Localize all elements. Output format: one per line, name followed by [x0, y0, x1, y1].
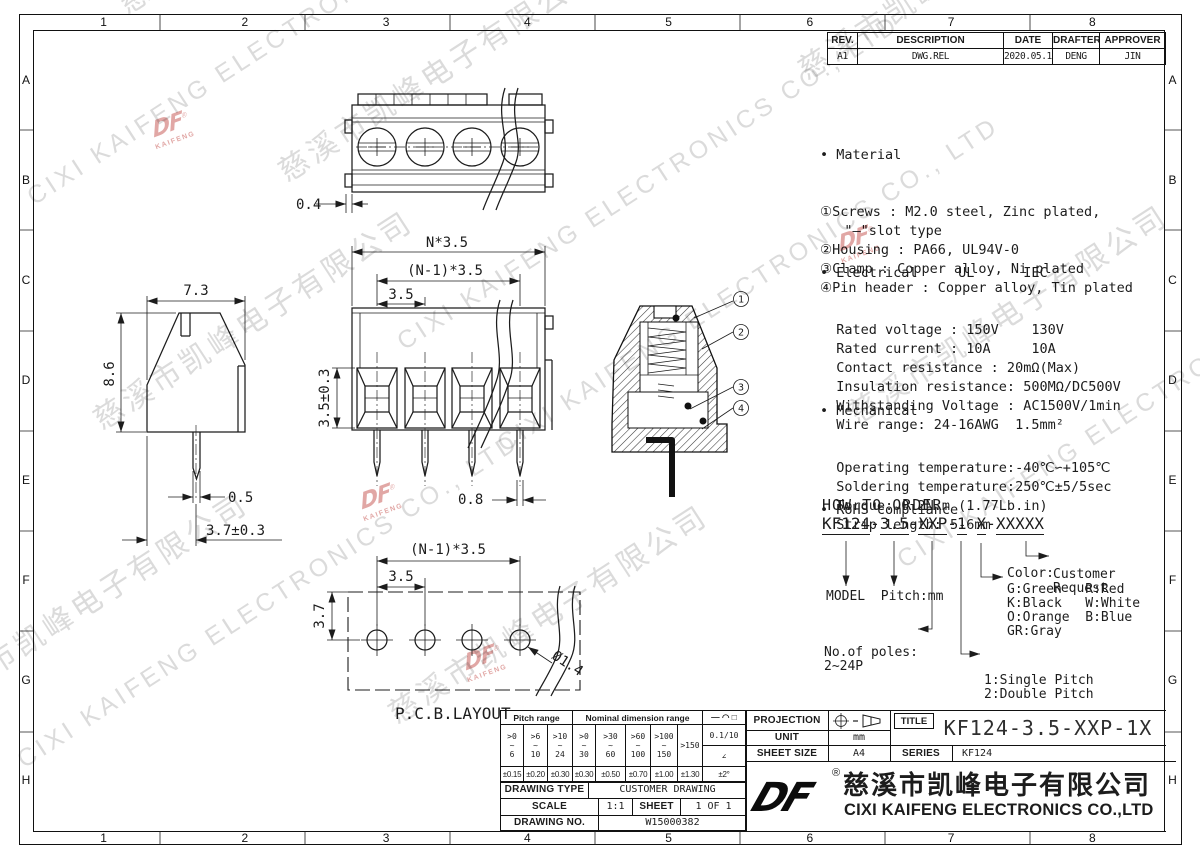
company-name-zh: 慈溪市凯峰电子有限公司	[843, 765, 1165, 802]
front-view-dims: N*3.5 (N-1)*3.5 3.5	[352, 235, 545, 306]
order-code-segment: X	[977, 514, 987, 535]
dim-pcb-row	[327, 592, 360, 640]
dim-label: 3.5	[388, 287, 413, 303]
series-label: SERIES	[890, 745, 953, 762]
nominal-cell: >100 ~ 150	[651, 725, 678, 767]
registered-mark: ®	[832, 767, 840, 779]
kaifeng-logo: DF	[746, 775, 817, 821]
tolerance-cell: ±0.30	[548, 767, 573, 782]
revision-header-cell: DESCRIPTION	[858, 33, 1004, 49]
unit-label: UNIT	[746, 730, 829, 746]
pcb-layout-view: (N-1)*3.5 3.5 3.7 Ø1.4 P.C.B.LAYOUT	[312, 542, 586, 723]
order-poles-label: No.of poles:2~24P	[824, 618, 918, 688]
pitch-cell: >10 ~ 24	[548, 725, 573, 767]
dim-label: (N-1)*3.5	[410, 542, 486, 558]
over-cell: >150	[678, 725, 703, 767]
revision-data-cell: 2020.05.19	[1004, 49, 1053, 65]
order-code-hyphen: -	[909, 514, 919, 533]
order-code-hyphen: -	[947, 514, 957, 533]
side-view: 7.3 8.6 0.5 3.7±0.3	[102, 283, 282, 546]
revision-data-row: A1DWG.REL2020.05.19DENGJIN	[828, 49, 1166, 65]
order-code-segment: XXXXX	[996, 514, 1044, 535]
series-value: KF124	[952, 745, 1176, 762]
note-line: Rated current : 10A 10A	[820, 340, 1121, 359]
order-model-pitch-label: MODEL Pitch:mm	[826, 590, 943, 604]
dim-label: 0.8	[458, 492, 483, 508]
dim-side-height	[116, 313, 176, 432]
dim-pin-side	[168, 471, 225, 503]
order-pitch-type-label: 1:Single Pitch2:Double Pitch	[984, 646, 1094, 716]
symbol-header: — ◠ □	[703, 711, 746, 725]
dim-label: 7.3	[183, 283, 208, 299]
how-to-order-title: HOW TO ORDER	[822, 496, 942, 514]
tolerance-cell: ±1.00	[651, 767, 678, 782]
dim-pcb-pitch	[377, 578, 425, 626]
revision-header-row: REV.DESCRIPTIONDATEDRAFTERAPPROVER	[828, 33, 1166, 49]
tolerance-cell: ±0.30	[573, 767, 596, 782]
dim-label: 3.7	[312, 603, 328, 628]
pitch-cell: >0 ~ 6	[501, 725, 524, 767]
order-code-hyphen: -	[986, 514, 996, 533]
fraction-angle-cell: 0.1/10∠	[703, 725, 746, 767]
color-option-line: GR:Gray	[1007, 625, 1140, 639]
pitch-cell: >6 ~ 10	[524, 725, 548, 767]
dim-side-width	[147, 296, 245, 380]
sheet-size-value: A4	[828, 745, 891, 762]
revision-header-cell: DATE	[1004, 33, 1053, 49]
front-view: 0.8 3.5±0.3	[317, 300, 553, 508]
revision-data-cell: DWG.REL	[858, 49, 1004, 65]
order-customer-label: CustomerRequest	[1053, 540, 1116, 610]
unit-value: mm	[828, 730, 891, 746]
first-angle-projection-icon	[830, 712, 888, 730]
nominal-cell: >0 ~ 30	[573, 725, 596, 767]
order-code-segment: 1	[957, 514, 967, 535]
tolerance-cell: ±0.20	[524, 767, 548, 782]
note-title: • Electrical UL IEC	[820, 264, 1121, 283]
tolerance-cell: ±0.70	[626, 767, 651, 782]
tolerance-table: Pitch range Nominal dimension range — ◠ …	[500, 710, 747, 783]
revision-table: REV.DESCRIPTIONDATEDRAFTERAPPROVER A1DWG…	[827, 32, 1166, 65]
nominal-cell: >60 ~ 100	[626, 725, 651, 767]
angle-tolerance-cell: ±2°	[703, 767, 746, 782]
section-view: 1 2 3 4	[612, 292, 749, 498]
revision-data-cell: JIN	[1100, 49, 1166, 65]
order-code-segment: XXP	[918, 514, 947, 535]
top-view: 0.4	[296, 88, 553, 213]
note-title: • Mechanical	[820, 402, 1112, 421]
order-color-title: Color:	[1007, 567, 1054, 581]
dim-label: 0.4	[296, 197, 321, 213]
title-block: PROJECTION UNIT mm SHEET SIZE A4 TITLE K…	[745, 710, 1166, 832]
dim-pcb-inner-pitch	[377, 556, 520, 626]
title-label: TITLE	[894, 713, 934, 729]
dim-label: 0.5	[228, 490, 253, 506]
callout-label: 3	[738, 383, 744, 394]
order-code: KF124-3.5-XXP-1X-XXXXX	[822, 514, 1044, 535]
company-area: DF ® 慈溪市凯峰电子有限公司 CIXI KAIFENG ELECTRONIC…	[746, 761, 1166, 831]
note-line: ①Screws : M2.0 steel, Zinc plated,	[820, 203, 1133, 222]
dim-tab-offset	[316, 194, 368, 213]
sheet-size-label: SHEET SIZE	[746, 745, 829, 762]
pcb-layout-label: P.C.B.LAYOUT	[395, 704, 511, 723]
revision-header-cell: APPROVER	[1100, 33, 1166, 49]
tolerance-cell: ±0.50	[596, 767, 626, 782]
drawing-type-row: DRAWING TYPE CUSTOMER DRAWING	[500, 781, 747, 799]
projection-symbol	[828, 711, 891, 731]
note-title: • Material	[820, 146, 1133, 165]
projection-label: PROJECTION	[746, 711, 829, 731]
revision-header-cell: DRAFTER	[1053, 33, 1100, 49]
order-code-segment: KF124	[822, 514, 870, 535]
callout-label: 4	[738, 404, 744, 415]
drawing-no-row: DRAWING NO. W15000382	[500, 815, 747, 831]
title-area: TITLE KF124-3.5-XXP-1X	[890, 711, 1166, 746]
callout-label: 1	[738, 295, 744, 306]
engineering-drawing-sheet: { "zones": { "cols": ["1","2","3","4","5…	[0, 0, 1200, 860]
order-code-hyphen: -	[870, 514, 880, 533]
revision-data-cell: DENG	[1053, 49, 1100, 65]
color-option-line: O:Orange B:Blue	[1007, 611, 1140, 625]
pitch-range-header: Pitch range	[501, 711, 573, 725]
nominal-range-header: Nominal dimension range	[573, 711, 703, 725]
scale-sheet-row: SCALE 1:1 SHEET 1 OF 1	[500, 798, 747, 816]
revision-header-cell: REV.	[828, 33, 858, 49]
dim-label: 8.6	[102, 361, 118, 386]
revision-data-cell: A1	[828, 49, 858, 65]
dim-label: N*3.5	[426, 235, 468, 251]
note-line: Rated voltage : 150V 130V	[820, 321, 1121, 340]
dim-label: (N-1)*3.5	[407, 263, 483, 279]
company-name-en: CIXI KAIFENG ELECTRONICS CO.,LTD	[844, 801, 1166, 820]
dim-label: 3.5	[388, 569, 413, 585]
drawing-title: KF124-3.5-XXP-1X	[932, 713, 1164, 743]
order-code-segment: 3.5	[880, 514, 909, 535]
tolerance-cell: ±1.30	[678, 767, 703, 782]
dim-pin-front	[492, 480, 546, 506]
dim-label: 3.5±0.3	[317, 368, 333, 427]
dim-label: 3.7±0.3	[206, 523, 265, 539]
nominal-cell: >30 ~ 60	[596, 725, 626, 767]
tolerance-cell: ±0.15	[501, 767, 524, 782]
callout-label: 2	[738, 328, 744, 339]
